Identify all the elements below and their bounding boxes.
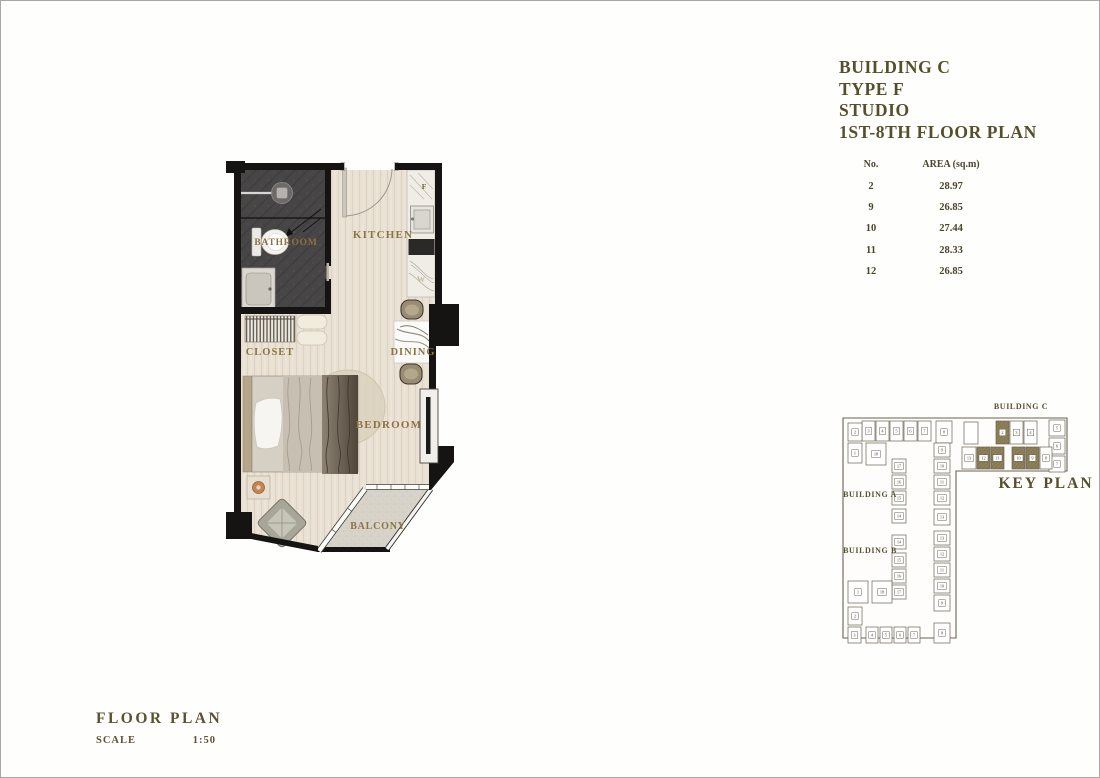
table-row: 12 26.85 (846, 261, 1016, 282)
bed (243, 375, 358, 474)
closet-label: CLOSET (246, 347, 295, 358)
bathroom-sliding-door (327, 263, 330, 281)
washer-label: W (417, 275, 425, 284)
bathroom-sink (242, 268, 275, 310)
key-plan-title: KEY PLAN (998, 475, 1092, 492)
unit-number: 13 (967, 456, 971, 461)
unit-number: 10 (940, 584, 944, 589)
cell-unit-no: 10 (846, 223, 896, 234)
cooktop (409, 239, 435, 255)
area-table: No. AREA (sq.m) 2 28.97 9 26.85 10 27.44… (846, 154, 1016, 282)
table-row: 9 26.85 (846, 197, 1016, 218)
unit-number: 2 (854, 430, 856, 435)
area-table-header: No. AREA (sq.m) (846, 154, 1016, 175)
unit-number: 8 (943, 430, 945, 435)
kitchen-sink (411, 206, 434, 233)
title-building: BUILDING C (839, 57, 1037, 79)
col-header-area: AREA (sq.m) (896, 159, 1006, 170)
unit-number: 12 (981, 456, 985, 461)
cell-unit-no: 12 (846, 266, 896, 277)
drawing-title: FLOOR PLAN (96, 710, 222, 728)
unit-number: 13 (940, 515, 944, 520)
unit-number: 9 (941, 601, 943, 606)
balcony-label: BALCONY (350, 521, 406, 532)
light-blanket (283, 376, 323, 472)
unit-number: 3 (867, 429, 869, 434)
cell-unit-no: 2 (846, 181, 896, 192)
unit-number: 15 (897, 558, 901, 563)
bathroom-label: BATHROOM (254, 238, 317, 248)
cell-unit-area: 28.33 (896, 245, 1006, 256)
dresser (297, 315, 327, 329)
key-plan-unit (964, 422, 978, 444)
unit-number: 2 (854, 614, 856, 619)
unit-number: 11 (940, 480, 944, 485)
unit-number: 8 (941, 631, 943, 636)
fridge-label: F (422, 182, 427, 191)
unit-number: 10 (1016, 456, 1020, 461)
unit-number: 3 (1015, 430, 1017, 435)
unit-number: 18 (874, 452, 878, 457)
building-c-label: BUILDING C (994, 402, 1048, 411)
dresser (297, 331, 327, 345)
building-b-label: BUILDING B (843, 546, 897, 555)
kitchen-label: KITCHEN (353, 229, 413, 241)
drawing-footer: FLOOR PLAN SCALE 1:50 (96, 710, 222, 746)
col-header-no: No. (846, 159, 896, 170)
unit-floor-plan-drawing: KITCHEN BATHROOM CLOSET DINING BEDROOM B… (225, 149, 461, 569)
cell-unit-no: 11 (846, 245, 896, 256)
table-row: 11 28.33 (846, 240, 1016, 261)
bedroom-window (420, 389, 438, 463)
cell-unit-no: 9 (846, 202, 896, 213)
title-block: BUILDING C TYPE F STUDIO 1ST-8TH FLOOR P… (839, 57, 1037, 143)
pillow (254, 398, 282, 449)
unit-number: 11 (940, 568, 944, 573)
unit-number: 5 (895, 429, 897, 434)
unit-number: 11 (995, 456, 999, 461)
unit-number: 15 (897, 496, 901, 501)
shaft-block (429, 304, 459, 346)
scale-value: 1:50 (193, 735, 216, 746)
unit-number: 5 (1056, 426, 1058, 431)
cell-unit-area: 27.44 (896, 223, 1006, 234)
title-type: TYPE F (839, 79, 1037, 101)
title-unit-kind: STUDIO (839, 100, 1037, 122)
table-row: 2 28.97 (846, 175, 1016, 196)
cell-unit-area: 26.85 (896, 202, 1006, 213)
unit-number: 1 (857, 590, 859, 595)
unit-number: 12 (940, 552, 944, 557)
unit-number: 2 (1001, 430, 1003, 435)
cell-unit-area: 26.85 (896, 266, 1006, 277)
unit-number: 8 (1045, 456, 1047, 461)
unit-number: 9 (941, 448, 943, 453)
unit-number: 5 (885, 633, 887, 638)
floor-plan-sheet: BUILDING C TYPE F STUDIO 1ST-8TH FLOOR P… (0, 0, 1100, 778)
scale-label: SCALE (96, 735, 136, 746)
table-row: 10 27.44 (846, 218, 1016, 239)
key-plan-drawing: 2345671312111098345678211817161514910111… (834, 397, 1092, 649)
title-floors: 1ST-8TH FLOOR PLAN (839, 122, 1037, 144)
shower-head (272, 183, 293, 204)
bedside-table (247, 476, 270, 499)
unit-number: 13 (940, 536, 944, 541)
bedroom-label: BEDROOM (356, 419, 422, 431)
dining-label: DINING (390, 347, 435, 358)
headboard (243, 376, 252, 472)
unit-number: 10 (940, 464, 944, 469)
unit-number: 12 (940, 496, 944, 501)
building-a-label: BUILDING A (843, 490, 897, 499)
unit-number: 1 (854, 451, 856, 456)
unit-number: 9 (1031, 456, 1033, 461)
unit-number: 18 (880, 590, 884, 595)
cell-unit-area: 28.97 (896, 181, 1006, 192)
unit-number: 3 (853, 633, 855, 638)
